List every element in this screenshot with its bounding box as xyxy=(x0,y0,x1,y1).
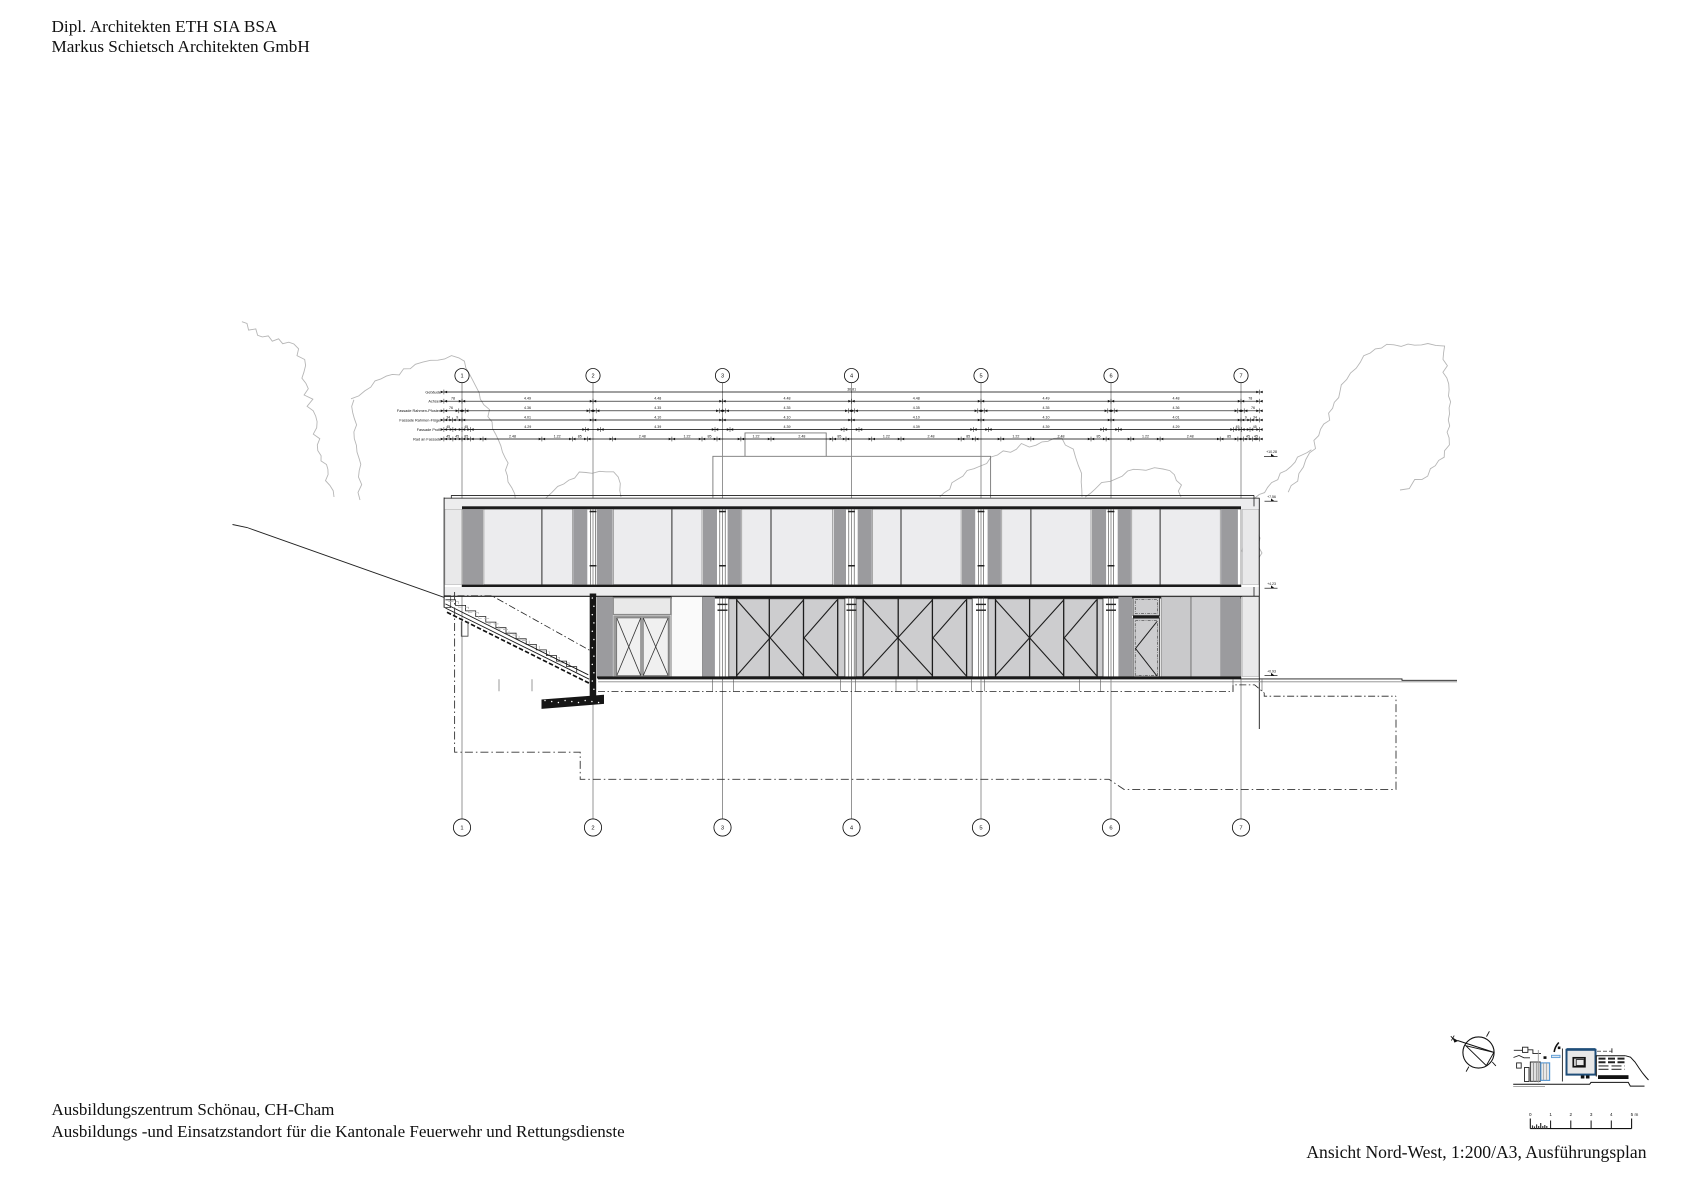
svg-text:4.36: 4.36 xyxy=(524,406,531,410)
svg-text:2.48: 2.48 xyxy=(1058,434,1065,438)
svg-text:3: 3 xyxy=(1590,1112,1593,1117)
svg-text:78: 78 xyxy=(451,397,455,401)
svg-text:45: 45 xyxy=(1253,425,1257,429)
svg-text:45: 45 xyxy=(1246,434,1250,438)
svg-text:Dipl. Architekten ETH SIA BSA: Dipl. Architekten ETH SIA BSA xyxy=(52,17,278,36)
svg-text:45: 45 xyxy=(455,434,459,438)
svg-text:34: 34 xyxy=(1253,415,1257,419)
svg-text:45: 45 xyxy=(446,434,450,438)
svg-text:4.10: 4.10 xyxy=(654,415,661,419)
svg-text:Ausbildungs -und Einsatzstando: Ausbildungs -und Einsatzstandort für die… xyxy=(52,1122,625,1141)
svg-text:4.35: 4.35 xyxy=(913,406,920,410)
svg-text:1.22: 1.22 xyxy=(753,434,760,438)
svg-text:1.22: 1.22 xyxy=(554,434,561,438)
svg-text:45: 45 xyxy=(1254,434,1258,438)
svg-text:4.39: 4.39 xyxy=(784,425,791,429)
svg-text:+0.93: +0.93 xyxy=(1267,670,1276,674)
svg-text:4: 4 xyxy=(850,374,853,380)
svg-text:Fassade Rahmen-Pfosten: Fassade Rahmen-Pfosten xyxy=(397,409,441,413)
svg-text:2.48: 2.48 xyxy=(639,434,646,438)
svg-text:Markus Schietsch Architekten G: Markus Schietsch Architekten GmbH xyxy=(52,37,310,56)
svg-text:Ausbildungszentrum Schönau, CH: Ausbildungszentrum Schönau, CH-Cham xyxy=(52,1100,335,1119)
svg-text:4.01: 4.01 xyxy=(1173,415,1180,419)
svg-text:6: 6 xyxy=(1109,826,1112,832)
svg-text:76: 76 xyxy=(449,406,453,410)
svg-text:4.39: 4.39 xyxy=(913,425,920,429)
svg-text:4.48: 4.48 xyxy=(1173,397,1180,401)
svg-text:85: 85 xyxy=(464,434,468,438)
svg-text:3: 3 xyxy=(721,826,724,832)
svg-text:5 m: 5 m xyxy=(1631,1112,1639,1117)
svg-text:1.22: 1.22 xyxy=(1142,434,1149,438)
svg-text:34: 34 xyxy=(446,415,450,419)
svg-text:78: 78 xyxy=(1248,397,1252,401)
svg-text:85: 85 xyxy=(837,434,841,438)
svg-text:+4.23: +4.23 xyxy=(1267,582,1276,586)
svg-text:76: 76 xyxy=(1251,406,1255,410)
svg-text:4.39: 4.39 xyxy=(654,425,661,429)
svg-text:Fassade Rahmen-Flügel: Fassade Rahmen-Flügel xyxy=(399,418,441,422)
svg-text:1: 1 xyxy=(1549,1112,1552,1117)
svg-text:4.29: 4.29 xyxy=(1173,425,1180,429)
svg-text:5: 5 xyxy=(979,826,982,832)
svg-text:4.10: 4.10 xyxy=(784,415,791,419)
svg-text:4.36: 4.36 xyxy=(1173,406,1180,410)
svg-text:4.10: 4.10 xyxy=(913,415,920,419)
svg-text:4: 4 xyxy=(1610,1112,1613,1117)
svg-text:Rad an Fassade: Rad an Fassade xyxy=(413,437,441,441)
svg-text:Ansicht Nord-West, 1:200/A3, A: Ansicht Nord-West, 1:200/A3, Ausführungs… xyxy=(1306,1142,1646,1162)
svg-text:4.01: 4.01 xyxy=(524,415,531,419)
svg-text:+7.56: +7.56 xyxy=(1267,495,1276,499)
svg-text:4.48: 4.48 xyxy=(784,397,791,401)
svg-text:9: 9 xyxy=(1245,415,1247,419)
svg-text:1: 1 xyxy=(460,826,463,832)
svg-text:2: 2 xyxy=(591,374,594,380)
svg-text:6: 6 xyxy=(1109,374,1112,380)
svg-text:4.10: 4.10 xyxy=(1043,415,1050,419)
svg-text:1: 1 xyxy=(460,374,463,380)
svg-text:85: 85 xyxy=(1227,434,1231,438)
svg-text:4.35: 4.35 xyxy=(1043,406,1050,410)
svg-text:+10.28: +10.28 xyxy=(1266,450,1277,454)
svg-text:36.81: 36.81 xyxy=(847,387,856,391)
svg-text:Achsen: Achsen xyxy=(428,400,441,404)
svg-text:Fassade Profil: Fassade Profil xyxy=(417,428,441,432)
svg-text:4.35: 4.35 xyxy=(784,406,791,410)
svg-text:1.22: 1.22 xyxy=(883,434,890,438)
svg-text:4.49: 4.49 xyxy=(1043,397,1050,401)
svg-text:4.35: 4.35 xyxy=(654,406,661,410)
svg-text:85: 85 xyxy=(1097,434,1101,438)
svg-text:85: 85 xyxy=(708,434,712,438)
svg-text:7: 7 xyxy=(1239,374,1242,380)
svg-text:45: 45 xyxy=(464,425,468,429)
svg-text:3: 3 xyxy=(721,374,724,380)
svg-text:1.22: 1.22 xyxy=(1012,434,1019,438)
svg-text:4.39: 4.39 xyxy=(1043,425,1050,429)
svg-text:4.48: 4.48 xyxy=(654,397,661,401)
svg-text:5: 5 xyxy=(979,374,982,380)
svg-text:2.48: 2.48 xyxy=(1187,434,1194,438)
svg-text:85: 85 xyxy=(966,434,970,438)
svg-text:0: 0 xyxy=(1529,1112,1532,1117)
svg-text:45: 45 xyxy=(446,425,450,429)
svg-text:2.48: 2.48 xyxy=(928,434,935,438)
svg-text:4.29: 4.29 xyxy=(524,425,531,429)
svg-text:2: 2 xyxy=(1570,1112,1573,1117)
svg-text:2: 2 xyxy=(591,826,594,832)
svg-text:7: 7 xyxy=(1239,826,1242,832)
svg-text:4.48: 4.48 xyxy=(913,397,920,401)
svg-text:9: 9 xyxy=(456,415,458,419)
svg-text:2.48: 2.48 xyxy=(509,434,516,438)
svg-text:Gebäude: Gebäude xyxy=(425,390,441,394)
svg-text:1.22: 1.22 xyxy=(684,434,691,438)
svg-text:4.49: 4.49 xyxy=(524,397,531,401)
svg-text:2.48: 2.48 xyxy=(798,434,805,438)
svg-text:85: 85 xyxy=(578,434,582,438)
svg-text:45: 45 xyxy=(1236,425,1240,429)
